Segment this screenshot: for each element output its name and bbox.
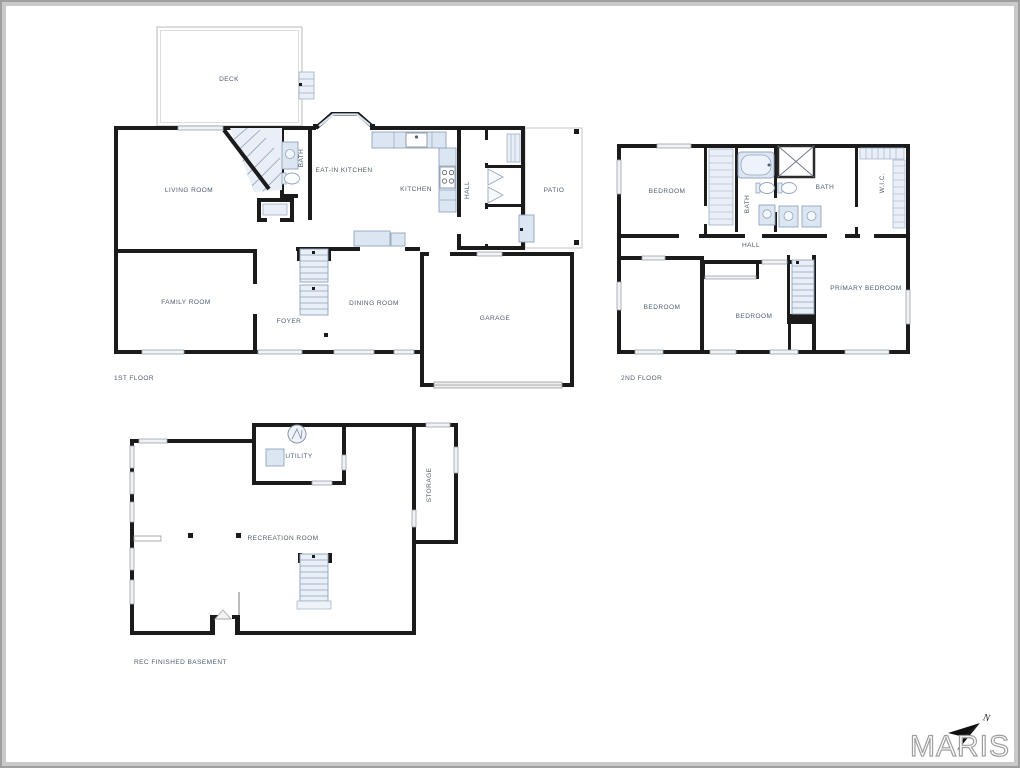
winder-stairs — [224, 122, 282, 194]
deck-stairs — [299, 72, 314, 99]
basement-walls — [130, 423, 458, 635]
floor-plan-page: N DECK LIVING ROOM BATH EAT-IN KITCHEN K… — [0, 0, 1020, 768]
foyer-stairs — [300, 249, 328, 315]
bathtub — [738, 152, 774, 178]
dining-cabinets — [354, 231, 405, 246]
maris-logo: MARIS — [910, 730, 1010, 764]
closet-chevron-doors — [488, 169, 503, 203]
wic-shelving — [860, 148, 905, 228]
basement-windows — [130, 423, 458, 604]
basement-stairs — [297, 554, 331, 609]
bath-toilet — [282, 173, 300, 184]
primary-bath-toilet — [778, 183, 797, 194]
stove — [440, 167, 455, 188]
bay-window — [313, 114, 375, 129]
garage-door — [434, 382, 562, 388]
deck-outline — [157, 27, 302, 126]
basement-plan — [130, 423, 458, 635]
furnace — [266, 449, 284, 466]
first-floor-walls — [114, 126, 574, 387]
shower — [778, 146, 814, 177]
floor-plan-drawing: N — [2, 2, 1020, 768]
workbench — [134, 536, 161, 541]
hall-bath-toilet — [756, 183, 775, 194]
first-floor-plan — [114, 27, 582, 388]
second-floor-plan — [617, 144, 910, 354]
hall-bath-sink — [759, 205, 775, 225]
bedroom-closet-strip — [709, 149, 733, 225]
water-heater — [288, 425, 306, 443]
floor-title-second: 2ND FLOOR — [621, 376, 662, 383]
floor-title-basement: REC FINISHED BASEMENT — [134, 660, 227, 667]
entry-bump — [215, 592, 240, 619]
stairs-second-floor — [792, 260, 814, 314]
double-vanity-sinks — [779, 206, 821, 227]
floor-title-first: 1ST FLOOR — [114, 376, 154, 383]
north-label-glyph: N — [981, 712, 992, 725]
kitchen-sink — [406, 133, 427, 147]
ac-unit — [519, 215, 534, 242]
bath-sink — [282, 142, 298, 169]
